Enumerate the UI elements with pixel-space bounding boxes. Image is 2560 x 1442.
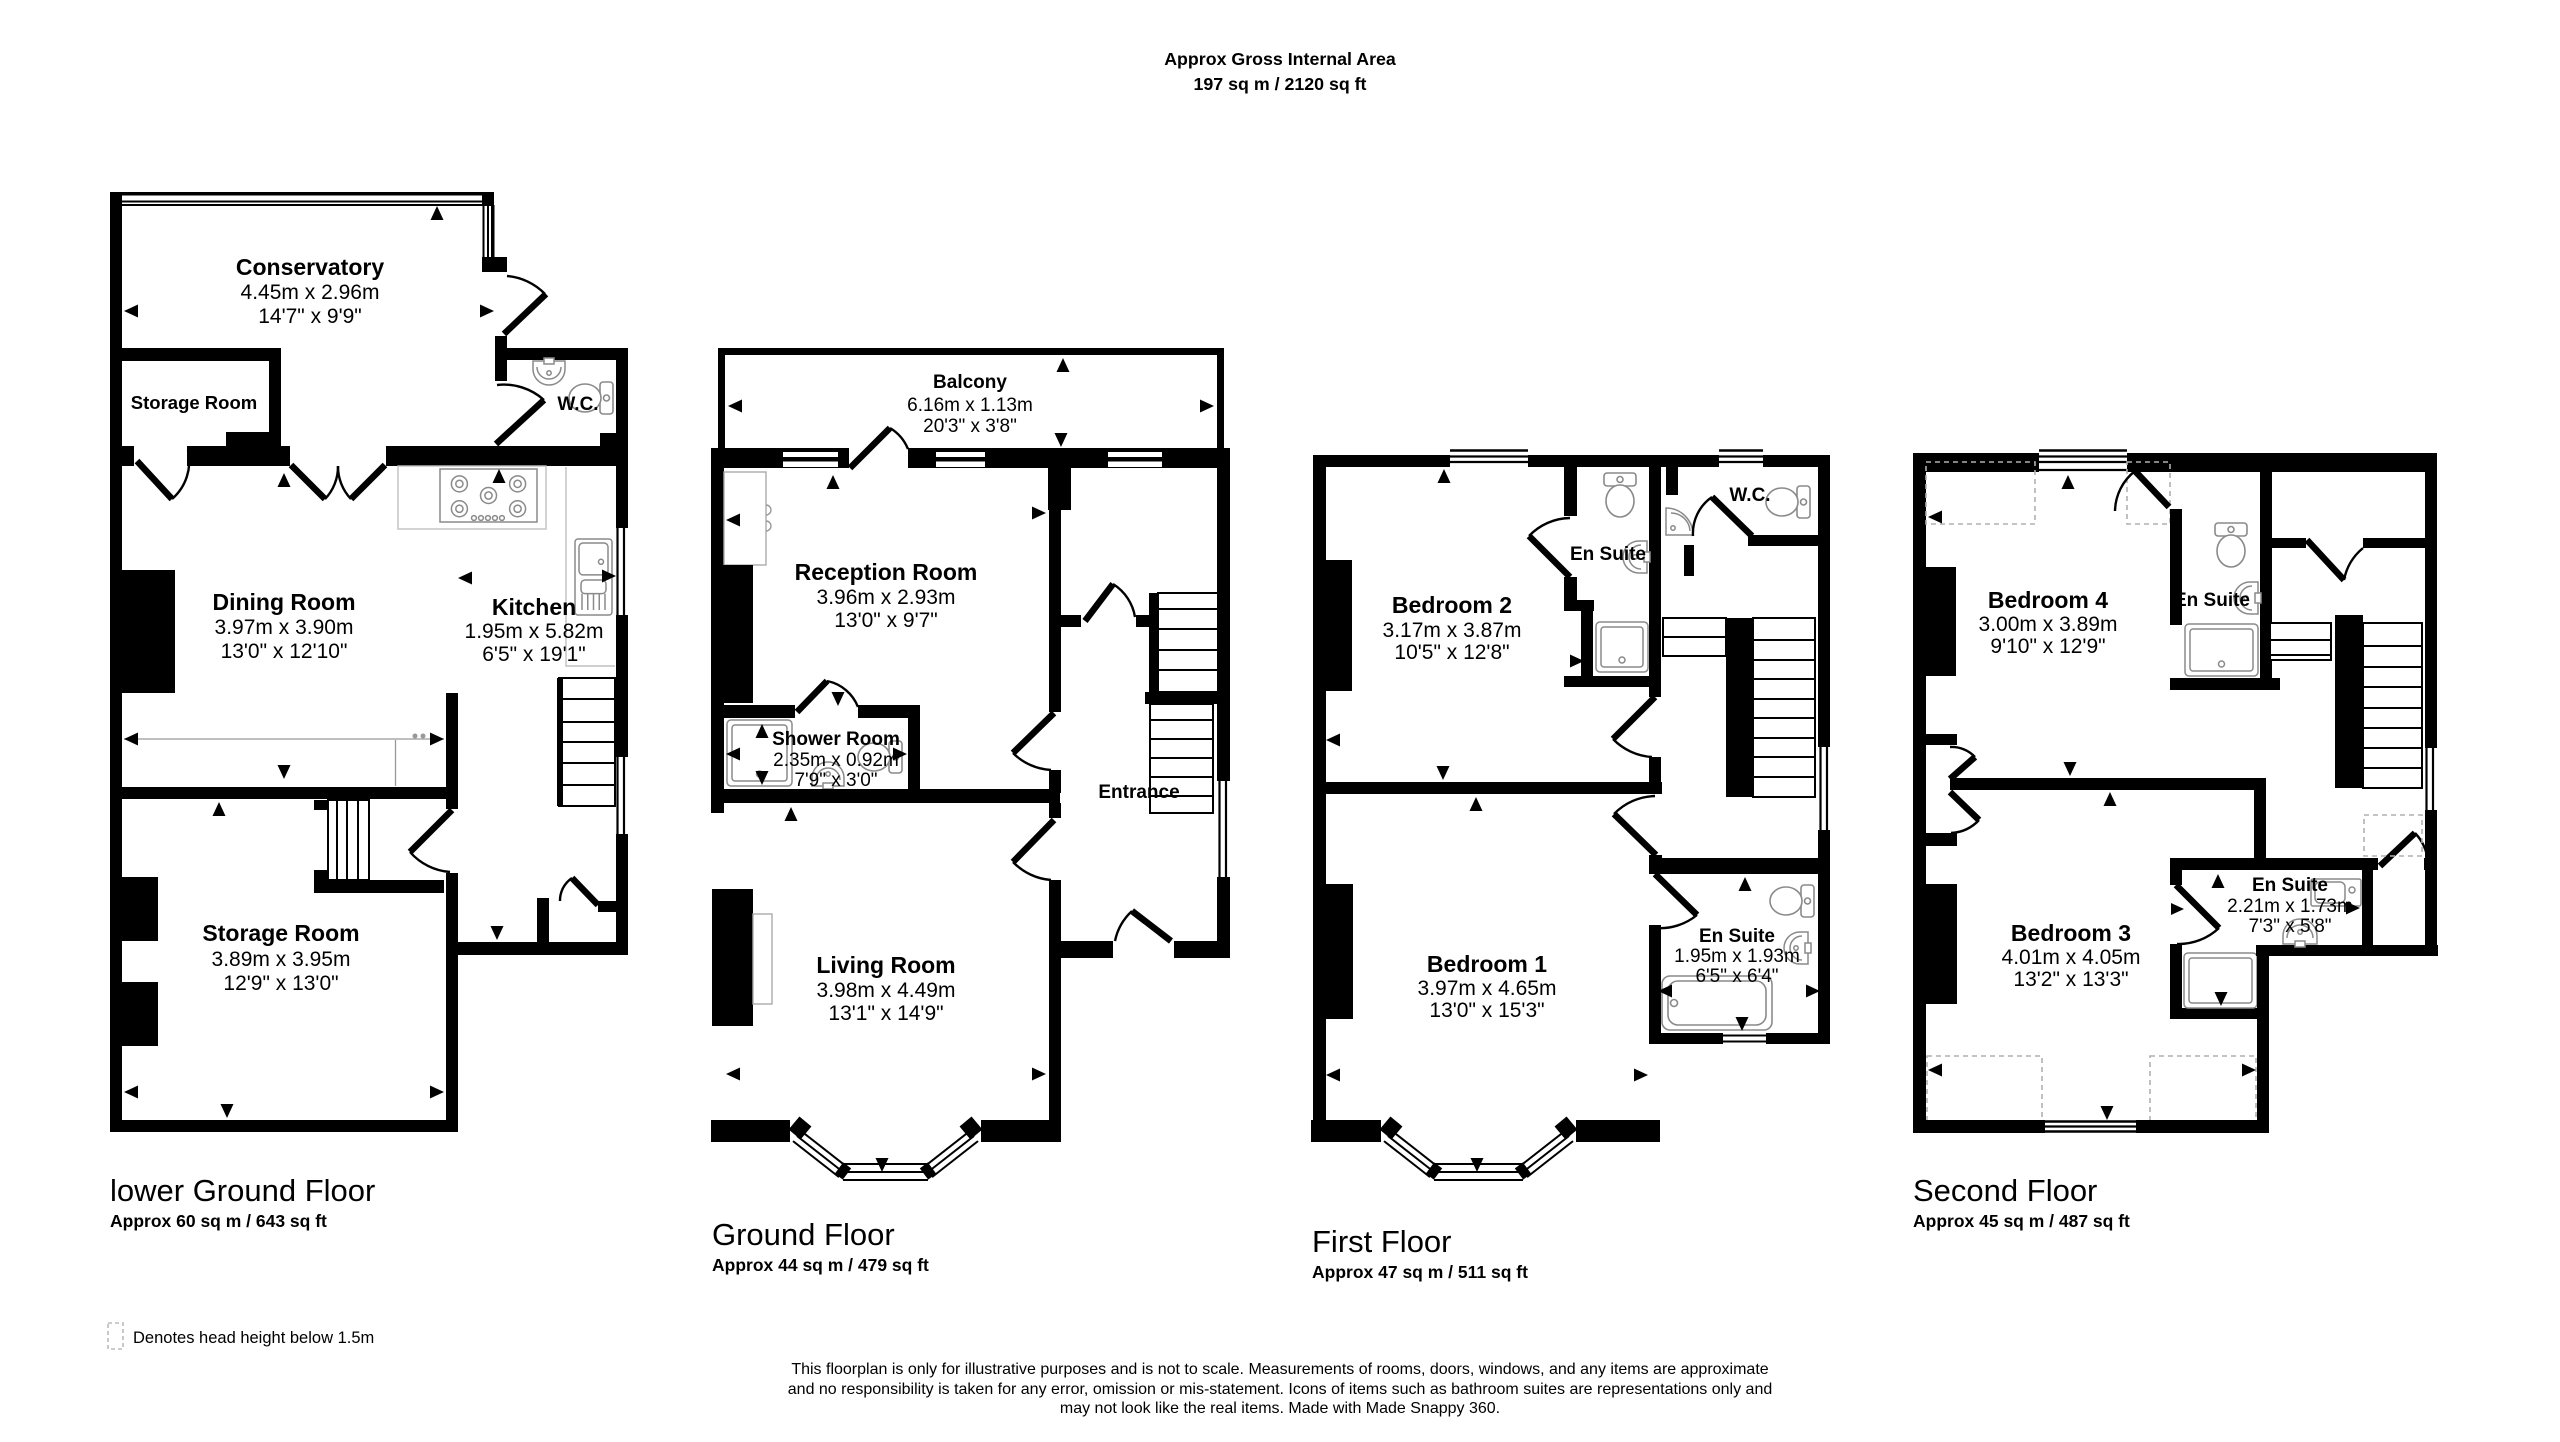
svg-text:Entrance: Entrance [1098, 782, 1179, 803]
svg-text:Reception Room: Reception Room [795, 559, 978, 585]
svg-text:13'1" x 14'9": 13'1" x 14'9" [828, 1002, 943, 1025]
svg-text:Bedroom 4: Bedroom 4 [1988, 587, 2108, 613]
svg-text:Approx 60 sq m / 643 sq ft: Approx 60 sq m / 643 sq ft [110, 1211, 327, 1231]
svg-text:Balcony: Balcony [933, 372, 1007, 393]
svg-text:Kitchen: Kitchen [492, 594, 576, 620]
svg-text:This floorplan is only for ill: This floorplan is only for illustrative … [791, 1361, 1768, 1378]
svg-text:and no responsibility is taken: and no responsibility is taken for any e… [788, 1381, 1772, 1398]
svg-text:Storage Room: Storage Room [131, 392, 257, 413]
svg-text:Denotes head height below 1.5m: Denotes head height below 1.5m [133, 1329, 374, 1347]
svg-text:W.C.: W.C. [1729, 485, 1770, 506]
svg-text:Conservatory: Conservatory [236, 254, 384, 280]
svg-text:4.01m x 4.05m: 4.01m x 4.05m [2002, 946, 2141, 969]
svg-text:Storage Room: Storage Room [202, 920, 359, 946]
svg-text:Second Floor: Second Floor [1913, 1173, 2097, 1208]
svg-text:13'0" x 12'10": 13'0" x 12'10" [221, 640, 348, 663]
svg-text:En Suite: En Suite [2252, 875, 2328, 896]
svg-text:3.89m x 3.95m: 3.89m x 3.95m [212, 948, 351, 971]
svg-text:9'10" x 12'9": 9'10" x 12'9" [1990, 635, 2105, 658]
svg-text:Shower Room: Shower Room [772, 729, 900, 750]
svg-text:En Suite: En Suite [1699, 926, 1775, 947]
svg-text:13'2" x 13'3": 13'2" x 13'3" [2013, 968, 2128, 991]
svg-text:Ground Floor: Ground Floor [712, 1217, 895, 1252]
svg-text:First Floor: First Floor [1312, 1224, 1452, 1259]
svg-text:Bedroom 1: Bedroom 1 [1427, 951, 1547, 977]
svg-text:3.17m x 3.87m: 3.17m x 3.87m [1383, 619, 1522, 642]
svg-text:1.95m x 1.93m: 1.95m x 1.93m [1674, 946, 1800, 967]
svg-text:Approx 45 sq m / 487 sq ft: Approx 45 sq m / 487 sq ft [1913, 1211, 2130, 1231]
svg-text:Bedroom 2: Bedroom 2 [1392, 592, 1512, 618]
svg-text:1.95m x 5.82m: 1.95m x 5.82m [465, 620, 604, 643]
svg-text:En Suite: En Suite [1570, 544, 1646, 565]
svg-text:13'0" x 9'7": 13'0" x 9'7" [834, 609, 938, 632]
svg-text:7'3" x 5'8": 7'3" x 5'8" [2248, 916, 2331, 937]
svg-text:6'5" x 6'4": 6'5" x 6'4" [1695, 966, 1778, 987]
svg-text:13'0" x 15'3": 13'0" x 15'3" [1429, 999, 1544, 1022]
svg-text:Approx Gross Internal Area: Approx Gross Internal Area [1164, 49, 1396, 69]
svg-text:14'7" x 9'9": 14'7" x 9'9" [258, 305, 362, 328]
svg-text:3.97m x 4.65m: 3.97m x 4.65m [1418, 977, 1557, 1000]
svg-text:Dining Room: Dining Room [212, 589, 355, 615]
svg-text:3.96m x 2.93m: 3.96m x 2.93m [817, 586, 956, 609]
svg-text:Living Room: Living Room [816, 952, 955, 978]
svg-text:7'9" x 3'0": 7'9" x 3'0" [794, 770, 877, 791]
svg-text:2.21m x 1.73m: 2.21m x 1.73m [2227, 896, 2353, 917]
svg-text:Approx 47 sq m / 511 sq ft: Approx 47 sq m / 511 sq ft [1312, 1262, 1528, 1282]
svg-text:may not look like the real ite: may not look like the real items. Made w… [1060, 1400, 1500, 1417]
svg-text:12'9" x 13'0": 12'9" x 13'0" [223, 972, 338, 995]
svg-text:20'3" x 3'8": 20'3" x 3'8" [923, 416, 1017, 437]
svg-text:10'5" x 12'8": 10'5" x 12'8" [1394, 641, 1509, 664]
svg-text:3.97m x 3.90m: 3.97m x 3.90m [215, 616, 354, 639]
svg-text:lower Ground Floor: lower Ground Floor [110, 1173, 375, 1208]
svg-text:197 sq m / 2120 sq ft: 197 sq m / 2120 sq ft [1194, 74, 1367, 94]
svg-text:6'5" x 19'1": 6'5" x 19'1" [482, 643, 586, 666]
svg-text:3.98m x 4.49m: 3.98m x 4.49m [817, 979, 956, 1002]
svg-text:W.C.: W.C. [557, 394, 598, 415]
svg-text:6.16m x 1.13m: 6.16m x 1.13m [907, 395, 1033, 416]
svg-text:4.45m x 2.96m: 4.45m x 2.96m [241, 281, 380, 304]
svg-text:Bedroom 3: Bedroom 3 [2011, 920, 2131, 946]
svg-text:3.00m x 3.89m: 3.00m x 3.89m [1979, 613, 2118, 636]
svg-text:Approx 44 sq m / 479 sq ft: Approx 44 sq m / 479 sq ft [712, 1255, 929, 1275]
svg-text:2.35m x 0.92m: 2.35m x 0.92m [773, 750, 899, 771]
svg-text:En Suite: En Suite [2174, 590, 2250, 611]
